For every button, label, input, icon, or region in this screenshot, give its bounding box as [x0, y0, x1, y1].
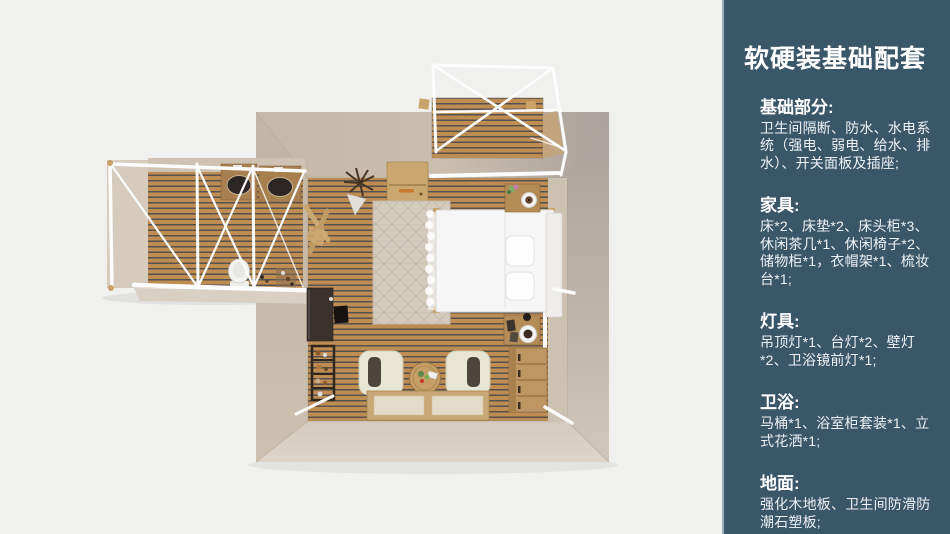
section-flooring: 地面: 强化木地板、卫生间防滑防潮石塑板;: [760, 476, 936, 531]
storage-cabinet: [387, 162, 428, 201]
section-basics: 基础部分: 卫生间隔断、防水、水电系统（强电、弱电、给水、排水）、开关面板及插座…: [760, 100, 936, 173]
section-lighting: 灯具: 吊顶灯*1、台灯*2、壁灯*2、卫浴镜前灯*1;: [760, 314, 936, 369]
section-heading: 灯具:: [760, 314, 936, 329]
section-bathroom: 卫浴: 马桶*1、浴室柜套装*1、立式花洒*1;: [760, 395, 936, 450]
section-body: 吊顶灯*1、台灯*2、壁灯*2、卫浴镜前灯*1;: [760, 334, 936, 369]
section-heading: 家具:: [760, 198, 936, 213]
mattress: [436, 210, 554, 312]
pillow: [506, 236, 534, 266]
section-heading: 地面:: [760, 476, 936, 491]
basin: [268, 178, 293, 197]
nightstand-top: [505, 184, 540, 212]
section-heading: 卫浴:: [760, 395, 936, 410]
section-body: 卫生间隔断、防水、水电系统（强电、弱电、给水、排水）、开关面板及插座;: [760, 120, 936, 173]
slide: 软硬装基础配套 基础部分: 卫生间隔断、防水、水电系统（强电、弱电、给水、排水）…: [0, 0, 950, 534]
headboard: [546, 213, 562, 317]
mirror: [520, 326, 537, 343]
pillow: [506, 272, 534, 300]
dressing-table: [504, 313, 540, 345]
section-furniture: 家具: 床*2、床垫*2、床头柜*3、休闲茶几*1、休闲椅子*2、储物柜*1，衣…: [760, 198, 936, 288]
table-lamp: [522, 193, 537, 208]
package-sidebar: 软硬装基础配套 基础部分: 卫生间隔断、防水、水电系统（强电、弱电、给水、排水）…: [722, 0, 950, 534]
armchair-left: [359, 351, 403, 395]
monitor: [333, 306, 348, 324]
tea-table: [410, 363, 441, 394]
dresser: [509, 348, 547, 412]
section-body: 强化木地板、卫生间防滑防潮石塑板;: [760, 496, 936, 531]
toilet: [229, 259, 250, 290]
section-heading: 基础部分:: [760, 100, 936, 115]
armchair-right: [446, 351, 490, 395]
floorplan-render: [0, 0, 722, 534]
section-body: 马桶*1、浴室柜套装*1、立式花洒*1;: [760, 415, 936, 450]
floor-mats: [367, 391, 489, 420]
sidebar-title: 软硬装基础配套: [744, 45, 936, 74]
section-body: 床*2、床垫*2、床头柜*3、休闲茶几*1、休闲椅子*2、储物柜*1，衣帽架*1…: [760, 218, 936, 288]
bed: [425, 208, 562, 317]
bathroom: [107, 158, 330, 304]
wall-bottom: [256, 421, 609, 462]
